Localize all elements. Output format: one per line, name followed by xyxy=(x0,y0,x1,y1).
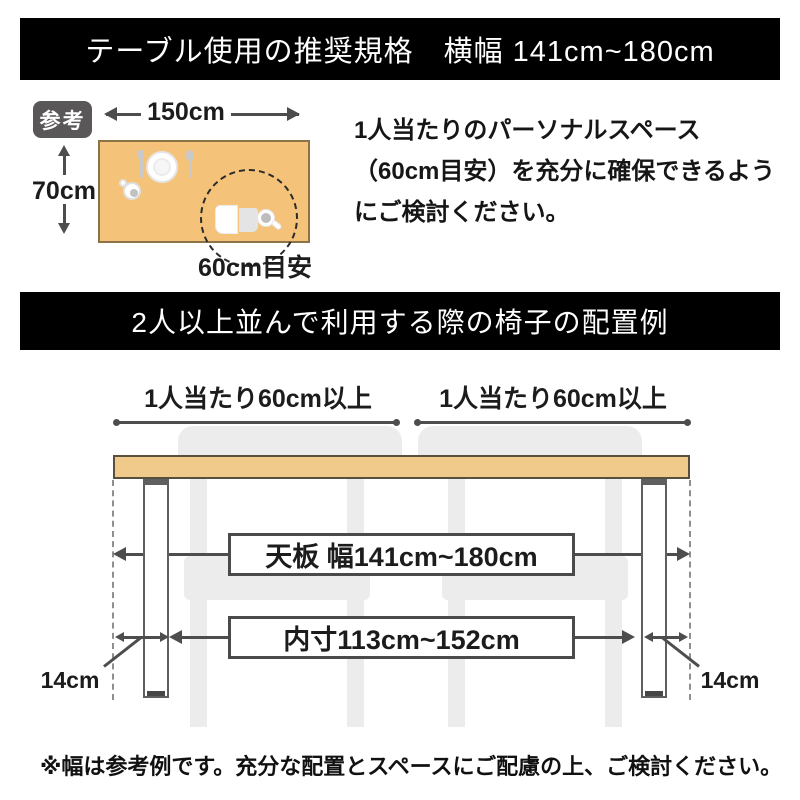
leg-offset-label-right: 14cm xyxy=(698,667,762,694)
arrangement-banner: 2人以上並んで利用する際の椅子の配置例 xyxy=(20,292,780,350)
per-person-width-label-left: 1人当たり60cm以上 xyxy=(126,379,390,415)
spec-banner-title: テーブル使用の推奨規格 横幅 141cm~180cm xyxy=(85,28,714,70)
leg-foot xyxy=(645,691,663,696)
arrow-right-icon xyxy=(287,107,300,121)
extension-line-left xyxy=(112,480,114,700)
arrangement-banner-title: 2人以上並んで利用する際の椅子の配置例 xyxy=(131,301,668,341)
chair-leg xyxy=(448,479,465,727)
chair-leg xyxy=(190,479,207,727)
arrow-left-icon xyxy=(104,107,117,121)
inner-width-label: 内寸113cm~152cm xyxy=(283,618,519,657)
leg-offset-label-left: 14cm xyxy=(38,667,102,694)
tabletop-width-label: 天板 幅141cm~180cm xyxy=(265,535,537,574)
dining-tabletop xyxy=(113,455,690,479)
reference-badge: 参考 xyxy=(33,101,92,138)
dimension-line xyxy=(63,204,66,224)
chair-leg xyxy=(347,479,364,727)
chair-backrest xyxy=(418,426,642,457)
table-leg-left xyxy=(143,479,169,698)
chair-backrest xyxy=(178,426,402,457)
plate-icon xyxy=(146,151,178,183)
fork-icon xyxy=(138,150,144,178)
tabletop-width-box: 天板 幅141cm~180cm xyxy=(228,533,575,576)
inner-width-box: 内寸113cm~152cm xyxy=(228,616,575,659)
spoon-icon xyxy=(186,150,194,178)
product-infographic: テーブル使用の推奨規格 横幅 141cm~180cm 参考 150cm 70cm xyxy=(0,0,800,800)
table-leg-right xyxy=(641,479,667,698)
personal-space-label: 60cm目安 xyxy=(196,248,314,284)
arrow-down-icon xyxy=(58,223,70,234)
depth-dimension-label: 70cm xyxy=(28,177,100,206)
per-person-width-label-right: 1人当たり60cm以上 xyxy=(421,379,685,415)
reference-badge-label: 参考 xyxy=(40,105,86,135)
dimension-line xyxy=(63,155,66,175)
chair-leg xyxy=(605,479,622,727)
footnote: ※幅は参考例です。充分な配置とスペースにご配慮の上、ご検討ください。 xyxy=(40,749,785,781)
leg-foot xyxy=(147,691,165,696)
spec-banner: テーブル使用の推奨規格 横幅 141cm~180cm xyxy=(20,18,780,80)
reference-description: 1人当たりのパーソナルスペース（60cm目安）を充分に確保できるようにご検討くだ… xyxy=(354,110,784,233)
width-dimension-label: 150cm xyxy=(141,98,231,127)
extension-line-right xyxy=(689,480,691,700)
leg-cap xyxy=(643,481,665,485)
leg-cap xyxy=(145,481,167,485)
